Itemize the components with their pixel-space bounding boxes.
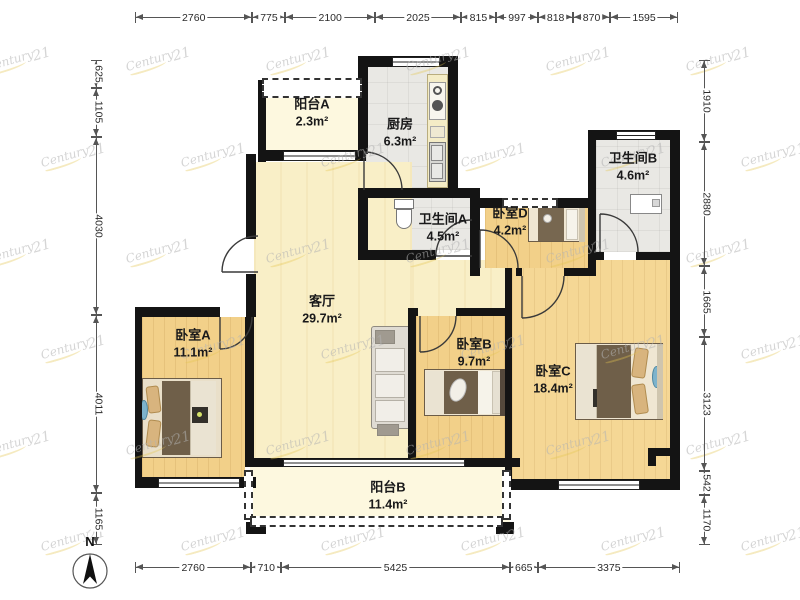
dim-tick xyxy=(677,12,678,23)
window-icon xyxy=(392,57,440,67)
watermark-swoosh-icon xyxy=(184,540,222,556)
wall xyxy=(470,268,480,276)
bed-sheet xyxy=(478,371,492,414)
watermark-swoosh-icon xyxy=(744,348,782,364)
compass: N xyxy=(64,535,116,593)
sofa-cushion xyxy=(375,330,395,344)
watermark: Century21 xyxy=(684,425,753,461)
room-label-balcony-a: 阳台A2.3m² xyxy=(294,96,329,129)
dimension-segment: 4011 xyxy=(90,315,104,493)
wall xyxy=(246,274,256,317)
sink-basin-icon xyxy=(431,163,443,179)
dim-arrow xyxy=(539,564,546,570)
watermark-suffix: 21 xyxy=(591,44,613,64)
dimension-segment: 665 xyxy=(510,561,538,575)
toilet-icon xyxy=(396,209,412,229)
room-name: 阳台B xyxy=(369,479,408,496)
room-area: 4.5m² xyxy=(419,228,467,244)
room-label-living: 客厅29.7m² xyxy=(302,293,342,326)
watermark-swoosh-icon xyxy=(464,540,502,556)
watermark-swoosh-icon xyxy=(324,540,362,556)
dimension-segment: 2025 xyxy=(375,11,461,25)
sofa-cushion xyxy=(375,348,405,372)
dimension-segment: 2100 xyxy=(285,11,374,25)
bed-pillow xyxy=(566,209,578,240)
wall xyxy=(636,252,680,260)
room-name: 阳台A xyxy=(294,96,329,113)
watermark-suffix: 21 xyxy=(226,524,248,544)
watermark-text: Century xyxy=(179,527,230,554)
room-area: 9.7m² xyxy=(456,353,491,369)
dim-value: 870 xyxy=(581,12,603,25)
dim-arrow xyxy=(93,138,99,145)
wall xyxy=(596,252,604,260)
dim-value: 1665 xyxy=(699,289,714,314)
wall xyxy=(245,317,254,467)
room-area: 4.6m² xyxy=(609,167,657,183)
watermark-swoosh-icon xyxy=(744,540,782,556)
dim-value: 625 xyxy=(91,64,106,84)
dim-value: 997 xyxy=(506,12,528,25)
dim-arrow xyxy=(93,307,99,314)
dim-value: 4011 xyxy=(91,392,106,417)
room-name: 卧室D xyxy=(492,205,527,222)
watermark-suffix: 21 xyxy=(171,236,193,256)
compass-north-label: N xyxy=(64,535,116,548)
room-area: 11.1m² xyxy=(174,344,213,360)
room-name: 卧室B xyxy=(456,336,491,353)
watermark-swoosh-icon xyxy=(44,156,82,172)
window-icon xyxy=(558,480,640,490)
dim-arrow xyxy=(611,14,618,20)
watermark-text: Century xyxy=(0,431,35,458)
watermark-swoosh-icon xyxy=(0,60,27,76)
wall xyxy=(358,250,436,260)
bed-duvet xyxy=(538,208,564,241)
dim-arrow xyxy=(286,14,293,20)
watermark-text: Century xyxy=(0,47,35,74)
dim-arrow xyxy=(367,14,374,20)
watermark: Century21 xyxy=(544,41,613,77)
watermark: Century21 xyxy=(0,233,53,269)
sofa-cushion xyxy=(377,424,399,436)
bed-duvet xyxy=(597,345,631,418)
dimension-segment: 818 xyxy=(538,11,573,25)
dimension-segment: 1170 xyxy=(698,495,712,545)
floor-plan: 阳台A2.3m²厨房6.3m²卫生间B4.6m²卫生间A4.5m²卧室D4.2m… xyxy=(0,0,800,600)
dim-arrow xyxy=(672,564,679,570)
watermark-suffix: 21 xyxy=(731,44,753,64)
wall xyxy=(135,307,220,317)
dim-value: 665 xyxy=(513,562,535,575)
watermark-text: Century xyxy=(319,527,370,554)
wall xyxy=(358,56,368,154)
watermark-suffix: 21 xyxy=(786,524,800,544)
dim-arrow xyxy=(530,14,537,20)
dimension-segment: 775 xyxy=(252,11,285,25)
compass-icon xyxy=(68,548,112,592)
dim-value: 4030 xyxy=(91,213,106,238)
dimension-segment: 870 xyxy=(573,11,610,25)
dim-arrow xyxy=(502,564,509,570)
watermark-text: Century xyxy=(124,239,175,266)
watermark-text: Century xyxy=(739,527,790,554)
room-area: 2.3m² xyxy=(294,113,329,129)
watermark: Century21 xyxy=(264,41,333,77)
dimension-segment: 5425 xyxy=(281,561,510,575)
wall xyxy=(505,268,512,479)
watermark-text: Century xyxy=(544,47,595,74)
watermark: Century21 xyxy=(179,521,248,557)
watermark-swoosh-icon xyxy=(269,60,307,76)
watermark-text: Century xyxy=(0,239,35,266)
watermark: Century21 xyxy=(739,137,800,173)
dim-value: 2760 xyxy=(180,12,207,25)
watermark-swoosh-icon xyxy=(184,156,222,172)
bed-duvet xyxy=(162,381,190,455)
dim-arrow xyxy=(701,267,707,274)
dim-arrow xyxy=(93,494,99,501)
wall xyxy=(448,56,458,198)
window-icon xyxy=(283,459,465,467)
dim-tick xyxy=(699,544,710,545)
watermark-swoosh-icon xyxy=(44,348,82,364)
dim-arrow xyxy=(243,564,250,570)
watermark-text: Century xyxy=(39,335,90,362)
window-icon xyxy=(158,478,240,488)
dim-value: 818 xyxy=(545,12,567,25)
window-icon xyxy=(283,151,356,161)
dim-value: 5425 xyxy=(382,562,409,575)
dashed-opening xyxy=(250,516,503,527)
watermark-suffix: 21 xyxy=(646,524,668,544)
room-name: 卧室C xyxy=(533,363,573,380)
dim-arrow xyxy=(376,14,383,20)
watermark-suffix: 21 xyxy=(31,44,53,64)
watermark: Century21 xyxy=(459,137,528,173)
dimension-segment: 1910 xyxy=(698,60,712,142)
watermark-text: Century xyxy=(179,143,230,170)
watermark: Century21 xyxy=(179,137,248,173)
watermark: Century21 xyxy=(124,41,193,77)
watermark-suffix: 21 xyxy=(506,140,528,160)
dim-arrow xyxy=(701,61,707,68)
dimension-segment: 4030 xyxy=(90,137,104,316)
dim-value: 542 xyxy=(699,473,714,493)
washer-knob-icon xyxy=(652,199,660,207)
dim-value: 1105 xyxy=(91,100,106,125)
room-name: 客厅 xyxy=(302,293,342,310)
watermark-swoosh-icon xyxy=(549,60,587,76)
dim-arrow xyxy=(602,14,609,20)
dim-arrow xyxy=(93,316,99,323)
watermark-suffix: 21 xyxy=(31,236,53,256)
bed-headboard xyxy=(579,207,585,242)
watermark-suffix: 21 xyxy=(731,428,753,448)
wall xyxy=(358,188,478,198)
dim-value: 2760 xyxy=(179,562,206,575)
dim-value: 2880 xyxy=(699,191,714,216)
room-label-bath-a: 卫生间A4.5m² xyxy=(419,211,467,244)
watermark-suffix: 21 xyxy=(226,140,248,160)
dimension-segment: 710 xyxy=(251,561,281,575)
dim-arrow xyxy=(282,564,289,570)
dim-arrow xyxy=(136,564,143,570)
dim-value: 3375 xyxy=(595,562,622,575)
watermark-suffix: 21 xyxy=(786,332,800,352)
toilet-icon xyxy=(394,199,414,209)
watermark-suffix: 21 xyxy=(731,236,753,256)
watermark-swoosh-icon xyxy=(464,156,502,172)
dim-arrow xyxy=(701,463,707,470)
watermark: Century21 xyxy=(684,41,753,77)
dim-arrow xyxy=(701,134,707,141)
room-area: 11.4m² xyxy=(369,496,408,512)
room-area: 4.2m² xyxy=(492,222,527,238)
dim-arrow xyxy=(701,537,707,544)
watermark: Century21 xyxy=(739,521,800,557)
room-label-balcony-b: 阳台B11.4m² xyxy=(369,479,408,512)
watermark-swoosh-icon xyxy=(744,156,782,172)
watermark: Century21 xyxy=(739,329,800,365)
wall xyxy=(588,130,596,276)
dimension-segment: 1105 xyxy=(90,88,104,137)
watermark-suffix: 21 xyxy=(31,428,53,448)
room-label-bed-b: 卧室B9.7m² xyxy=(456,336,491,369)
tv-tray-dot xyxy=(197,412,202,417)
wall xyxy=(648,448,656,466)
dim-value: 3123 xyxy=(699,392,714,417)
dimension-segment: 3123 xyxy=(698,337,712,471)
wall xyxy=(135,307,142,488)
room-area: 29.7m² xyxy=(302,310,342,326)
watermark-text: Century xyxy=(459,143,510,170)
dimension-segment: 542 xyxy=(698,471,712,494)
dimension-segment: 3375 xyxy=(538,561,680,575)
watermark-swoosh-icon xyxy=(0,252,27,268)
watermark-swoosh-icon xyxy=(0,444,27,460)
entry-door-icon xyxy=(222,236,258,272)
dim-arrow xyxy=(93,129,99,136)
dim-value: 815 xyxy=(468,12,490,25)
sofa-cushion xyxy=(375,400,405,422)
dim-arrow xyxy=(670,14,677,20)
dim-arrow xyxy=(701,258,707,265)
dim-value: 2025 xyxy=(404,12,431,25)
sink-basin-icon xyxy=(431,145,443,161)
room-label-bed-c: 卧室C18.4m² xyxy=(533,363,573,396)
dim-arrow xyxy=(136,14,143,20)
dashed-opening xyxy=(262,78,362,98)
bed-deco xyxy=(543,214,552,223)
wall xyxy=(516,268,522,276)
dim-tick xyxy=(679,562,680,573)
window-icon xyxy=(616,131,656,140)
watermark-suffix: 21 xyxy=(171,44,193,64)
wall xyxy=(670,130,680,490)
dim-arrow xyxy=(701,338,707,345)
room-area: 6.3m² xyxy=(384,133,417,149)
watermark-swoosh-icon xyxy=(129,252,167,268)
dashed-opening xyxy=(502,470,511,520)
watermark-text: Century xyxy=(739,335,790,362)
room-name: 厨房 xyxy=(384,116,417,133)
dim-arrow xyxy=(497,14,504,20)
room-area: 18.4m² xyxy=(533,380,573,396)
dim-value: 775 xyxy=(258,12,280,25)
watermark: Century21 xyxy=(599,521,668,557)
dimension-segment: 1595 xyxy=(610,11,678,25)
watermark: Century21 xyxy=(0,41,53,77)
watermark-text: Century xyxy=(39,143,90,170)
dim-arrow xyxy=(93,89,99,96)
room-name: 卧室A xyxy=(174,327,213,344)
wall xyxy=(456,308,512,316)
watermark: Century21 xyxy=(684,233,753,269)
watermark-suffix: 21 xyxy=(786,140,800,160)
dim-arrow xyxy=(244,14,251,20)
dimension-segment: 2760 xyxy=(135,11,252,25)
dim-value: 1170 xyxy=(699,508,714,533)
dim-value: 1165 xyxy=(91,507,106,532)
dim-arrow xyxy=(93,485,99,492)
watermark-suffix: 21 xyxy=(311,44,333,64)
dimension-segment: 625 xyxy=(90,60,104,88)
cutting-board-icon xyxy=(430,126,445,138)
room-label-bath-b: 卫生间B4.6m² xyxy=(609,150,657,183)
dim-value: 2100 xyxy=(316,12,343,25)
dimension-segment: 2880 xyxy=(698,142,712,266)
room-name: 卫生间B xyxy=(609,150,657,167)
sofa-cushion xyxy=(375,374,405,398)
bed-panel xyxy=(577,345,597,418)
watermark-swoosh-icon xyxy=(604,540,642,556)
watermark: Century21 xyxy=(124,233,193,269)
bed-panel xyxy=(426,371,444,414)
watermark-text: Century xyxy=(264,47,315,74)
dimension-segment: 1665 xyxy=(698,266,712,338)
dashed-opening xyxy=(244,470,253,520)
dim-value: 1910 xyxy=(699,88,714,113)
wall xyxy=(408,308,416,467)
watermark-text: Century xyxy=(599,527,650,554)
dim-arrow xyxy=(701,496,707,503)
watermark-suffix: 21 xyxy=(366,524,388,544)
watermark-swoosh-icon xyxy=(129,60,167,76)
room-label-kitchen: 厨房6.3m² xyxy=(384,116,417,149)
dimension-segment: 2760 xyxy=(135,561,251,575)
bed-headboard xyxy=(657,344,663,419)
stove-burner-icon xyxy=(433,86,442,95)
watermark: Century21 xyxy=(0,425,53,461)
dimension-segment: 815 xyxy=(461,11,496,25)
dim-arrow xyxy=(701,143,707,150)
room-name: 卫生间A xyxy=(419,211,467,228)
dim-arrow xyxy=(701,329,707,336)
watermark-text: Century xyxy=(124,47,175,74)
dim-value: 710 xyxy=(255,562,277,575)
watermark-text: Century xyxy=(739,143,790,170)
room-label-bed-d: 卧室D4.2m² xyxy=(492,205,527,238)
stove-burner-icon xyxy=(432,100,443,111)
dim-arrow xyxy=(453,14,460,20)
dim-value: 1595 xyxy=(630,12,657,25)
room-label-bed-a: 卧室A11.1m² xyxy=(174,327,213,360)
dimension-segment: 997 xyxy=(496,11,538,25)
wall xyxy=(246,154,256,239)
